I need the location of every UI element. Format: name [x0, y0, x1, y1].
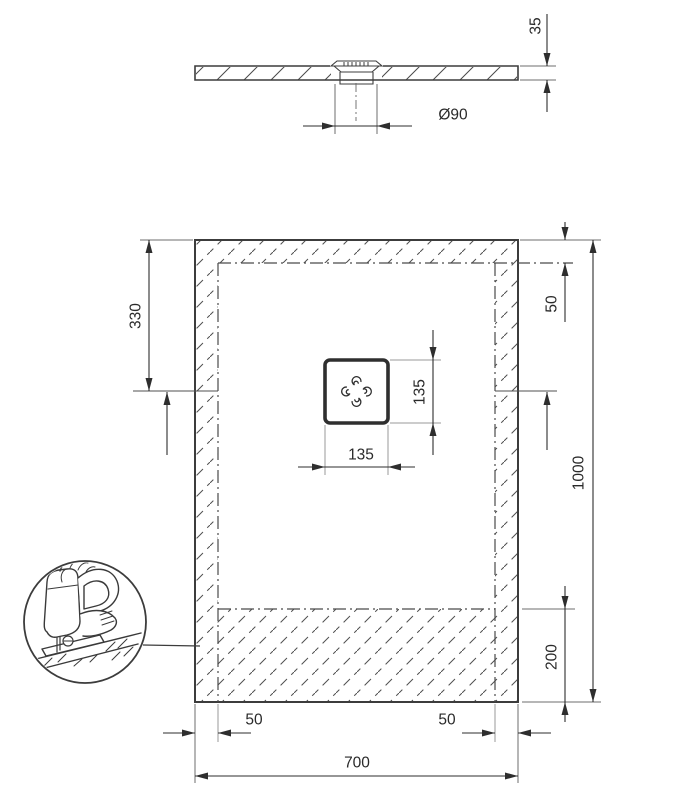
dim-drain-from-top: 330 [128, 240, 194, 391]
dim-label-1000: 1000 [571, 455, 588, 490]
section-slab-hatch [382, 67, 517, 80]
dim-label-700: 700 [344, 755, 370, 772]
dim-label-200: 200 [544, 644, 561, 670]
dim-label-50-left: 50 [245, 712, 263, 729]
dim-drain-diameter: Ø90 [303, 84, 468, 134]
dim-label-50-right: 50 [438, 712, 456, 729]
section-view: Ø90 35 [195, 14, 556, 134]
dim-label-330: 330 [128, 303, 145, 329]
drain-square [325, 360, 388, 423]
dim-drain-width: 135 [298, 425, 415, 475]
technical-drawing-sheet: Ø90 35 [0, 0, 673, 806]
plan-view: 330 50 1000 200 [128, 222, 602, 783]
dim-total-height: 1000 [522, 240, 601, 702]
detail-leader-line [143, 645, 200, 646]
dim-label-thickness: 35 [528, 17, 545, 34]
dim-drain-height: 135 [390, 330, 441, 455]
cut-detail [24, 553, 200, 683]
dim-total-width: 700 [195, 755, 518, 780]
dim-left-inset: 50 [163, 712, 263, 737]
dim-label-135-h: 135 [348, 447, 374, 464]
section-slab-hatch [196, 67, 331, 80]
dim-thickness: 35 [520, 14, 556, 112]
dim-top-inset: 50 [520, 222, 601, 322]
dim-label-drain-diameter: Ø90 [438, 107, 468, 124]
dim-label-50-top: 50 [544, 295, 561, 313]
plan-hatch-zones [195, 240, 518, 702]
dim-label-135-v: 135 [412, 379, 429, 405]
